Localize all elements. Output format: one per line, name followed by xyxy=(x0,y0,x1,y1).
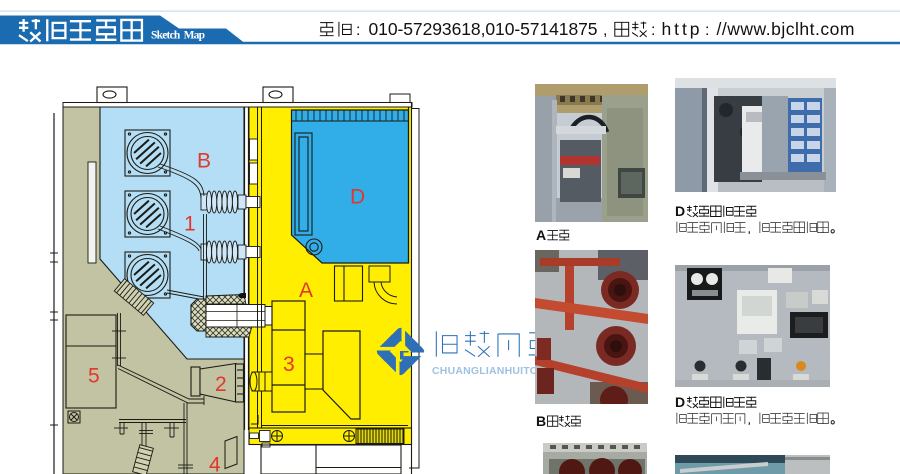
svg-text:5: 5 xyxy=(88,365,100,388)
svg-text:1: 1 xyxy=(184,213,196,236)
svg-text:A: A xyxy=(536,227,546,243)
svg-text:A: A xyxy=(299,279,313,302)
svg-text:B: B xyxy=(197,150,211,173)
svg-text:2: 2 xyxy=(215,373,227,396)
svg-text:B: B xyxy=(536,413,546,429)
svg-text::: : xyxy=(356,22,360,39)
svg-text:4: 4 xyxy=(209,454,221,474)
svg-text://www.bjclht.com: //www.bjclht.com xyxy=(717,19,855,39)
svg-text:D: D xyxy=(350,186,365,209)
svg-text:D: D xyxy=(675,203,685,219)
svg-text:,: , xyxy=(603,22,607,39)
svg-text:Sketch Map: Sketch Map xyxy=(151,30,205,42)
svg-text:3: 3 xyxy=(283,353,295,376)
svg-text::: : xyxy=(705,22,709,39)
svg-text::: : xyxy=(651,22,655,39)
svg-text:D: D xyxy=(675,394,685,410)
svg-text:010-57293618,010-57141875: 010-57293618,010-57141875 xyxy=(369,19,598,39)
